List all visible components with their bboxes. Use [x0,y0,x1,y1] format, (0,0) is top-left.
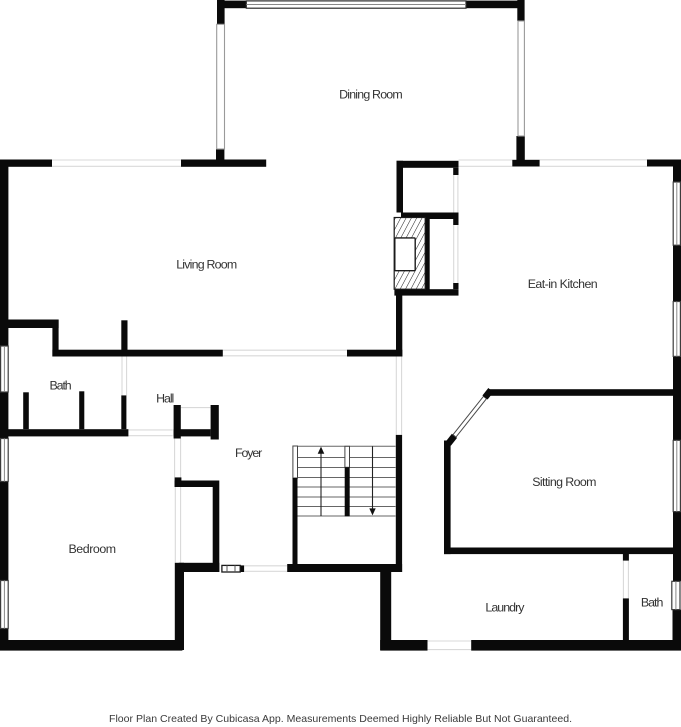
svg-text:Hall: Hall [156,392,174,406]
svg-text:Floor Plan Created By Cubicasa: Floor Plan Created By Cubicasa App. Meas… [109,713,572,725]
svg-text:Living Room: Living Room [176,257,237,271]
svg-text:Bath: Bath [641,596,664,610]
svg-text:Foyer: Foyer [235,446,262,460]
svg-text:Laundry: Laundry [485,600,525,614]
svg-text:Sitting Room: Sitting Room [532,475,596,489]
svg-text:Bedroom: Bedroom [69,542,117,556]
svg-text:Eat-in Kitchen: Eat-in Kitchen [528,277,598,291]
svg-text:Bath: Bath [50,379,72,393]
svg-text:Dining Room: Dining Room [339,87,403,101]
